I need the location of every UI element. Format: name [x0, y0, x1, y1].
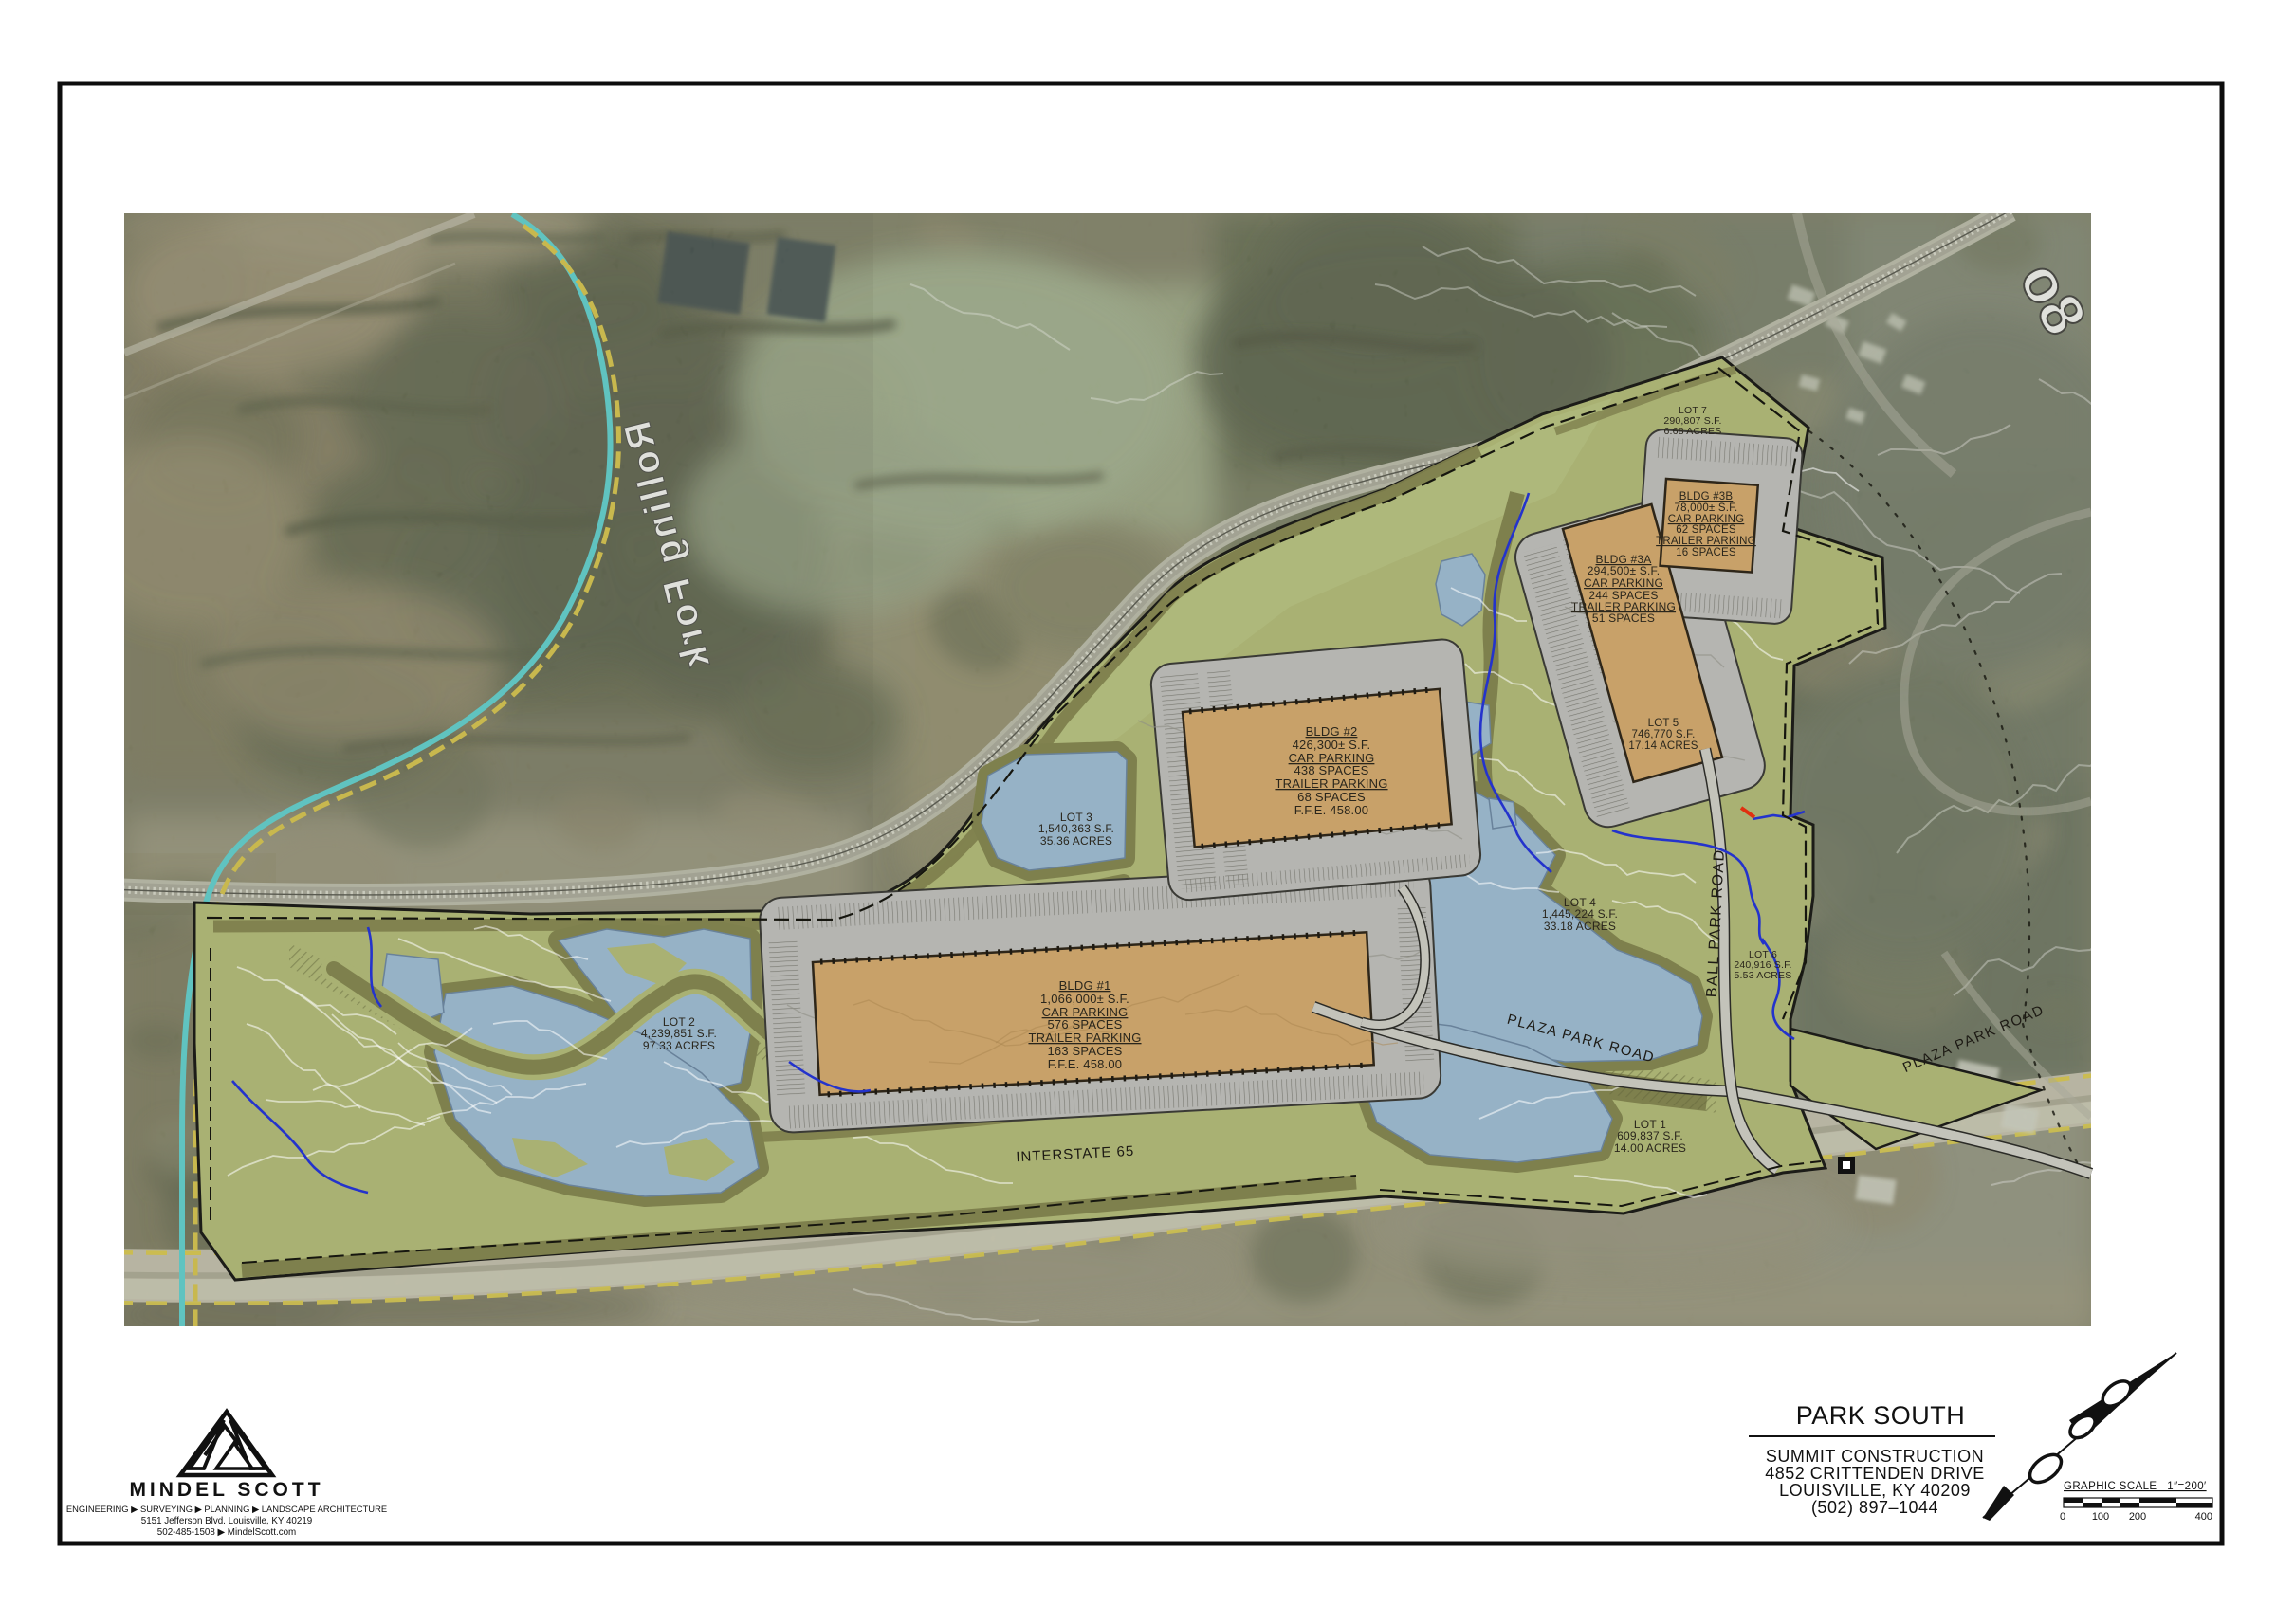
- svg-text:426,300± S.F.: 426,300± S.F.: [1293, 738, 1371, 752]
- svg-text:LOT 5: LOT 5: [1648, 718, 1679, 729]
- svg-text:78,000± S.F.: 78,000± S.F.: [1675, 502, 1738, 514]
- svg-text:6.68 ACRES: 6.68 ACRES: [1664, 426, 1722, 437]
- svg-text:TRAILER PARKING: TRAILER PARKING: [1656, 536, 1756, 547]
- svg-text:14.00 ACRES: 14.00 ACRES: [1614, 1141, 1686, 1155]
- svg-text:35.36 ACRES: 35.36 ACRES: [1040, 834, 1112, 848]
- svg-text:746,770 S.F.: 746,770 S.F.: [1632, 729, 1696, 740]
- svg-text:17.14 ACRES: 17.14 ACRES: [1628, 740, 1698, 752]
- svg-text:400: 400: [2195, 1511, 2212, 1523]
- svg-text:200: 200: [2129, 1511, 2146, 1523]
- svg-text:SUMMIT CONSTRUCTION: SUMMIT CONSTRUCTION: [1766, 1447, 1984, 1466]
- svg-text:(502) 897–1044: (502) 897–1044: [1811, 1498, 1938, 1517]
- svg-text:BLDG #2: BLDG #2: [1306, 724, 1358, 739]
- svg-text:ENGINEERING ▶ SURVEYING ▶ PLAN: ENGINEERING ▶ SURVEYING ▶ PLANNING ▶ LAN…: [66, 1504, 387, 1514]
- svg-text:BLDG #3B: BLDG #3B: [1679, 491, 1734, 502]
- svg-text:1,445,224 S.F.: 1,445,224 S.F.: [1542, 907, 1618, 921]
- svg-text:GRAPHIC SCALE 1″=200′: GRAPHIC SCALE 1″=200′: [2064, 1481, 2207, 1492]
- svg-text:LOUISVILLE, KY 40209: LOUISVILLE, KY 40209: [1779, 1481, 1971, 1500]
- svg-text:1,540,363 S.F.: 1,540,363 S.F.: [1038, 822, 1114, 835]
- svg-text:CAR PARKING: CAR PARKING: [1584, 576, 1663, 590]
- svg-text:0: 0: [2060, 1511, 2065, 1523]
- svg-text:576 SPACES: 576 SPACES: [1047, 1017, 1122, 1031]
- svg-text:F.F.E. 458.00: F.F.E. 458.00: [1048, 1057, 1122, 1071]
- svg-text:502-485-1508 ▶ MindelScott.com: 502-485-1508 ▶ MindelScott.com: [157, 1527, 296, 1538]
- svg-text:5151 Jefferson Blvd. Louisvill: 5151 Jefferson Blvd. Louisville, KY 4021…: [141, 1516, 312, 1526]
- svg-text:438 SPACES: 438 SPACES: [1294, 763, 1368, 777]
- svg-text:16 SPACES: 16 SPACES: [1676, 547, 1736, 558]
- svg-text:TRAILER PARKING: TRAILER PARKING: [1028, 1031, 1141, 1045]
- svg-text:62 SPACES: 62 SPACES: [1676, 524, 1736, 536]
- svg-text:97.33 ACRES: 97.33 ACRES: [643, 1039, 715, 1052]
- svg-text:4,239,851 S.F.: 4,239,851 S.F.: [641, 1027, 717, 1040]
- svg-text:5.53 ACRES: 5.53 ACRES: [1735, 970, 1792, 981]
- svg-text:MINDEL SCOTT: MINDEL SCOTT: [129, 1479, 323, 1501]
- svg-text:609,837 S.F.: 609,837 S.F.: [1617, 1129, 1683, 1142]
- svg-text:BLDG #1: BLDG #1: [1059, 978, 1111, 993]
- svg-text:PARK SOUTH: PARK SOUTH: [1796, 1401, 1966, 1430]
- svg-text:100: 100: [2092, 1511, 2109, 1523]
- svg-text:163 SPACES: 163 SPACES: [1047, 1044, 1122, 1058]
- svg-text:33.18 ACRES: 33.18 ACRES: [1544, 920, 1616, 933]
- svg-text:294,500± S.F.: 294,500± S.F.: [1588, 564, 1661, 577]
- svg-text:1,066,000± S.F.: 1,066,000± S.F.: [1040, 992, 1129, 1006]
- svg-text:51 SPACES: 51 SPACES: [1592, 611, 1655, 625]
- svg-text:TRAILER PARKING: TRAILER PARKING: [1275, 776, 1387, 791]
- svg-text:4852 CRITTENDEN DRIVE: 4852 CRITTENDEN DRIVE: [1765, 1464, 1985, 1483]
- svg-text:F.F.E. 458.00: F.F.E. 458.00: [1294, 803, 1368, 817]
- svg-text:68 SPACES: 68 SPACES: [1297, 790, 1366, 804]
